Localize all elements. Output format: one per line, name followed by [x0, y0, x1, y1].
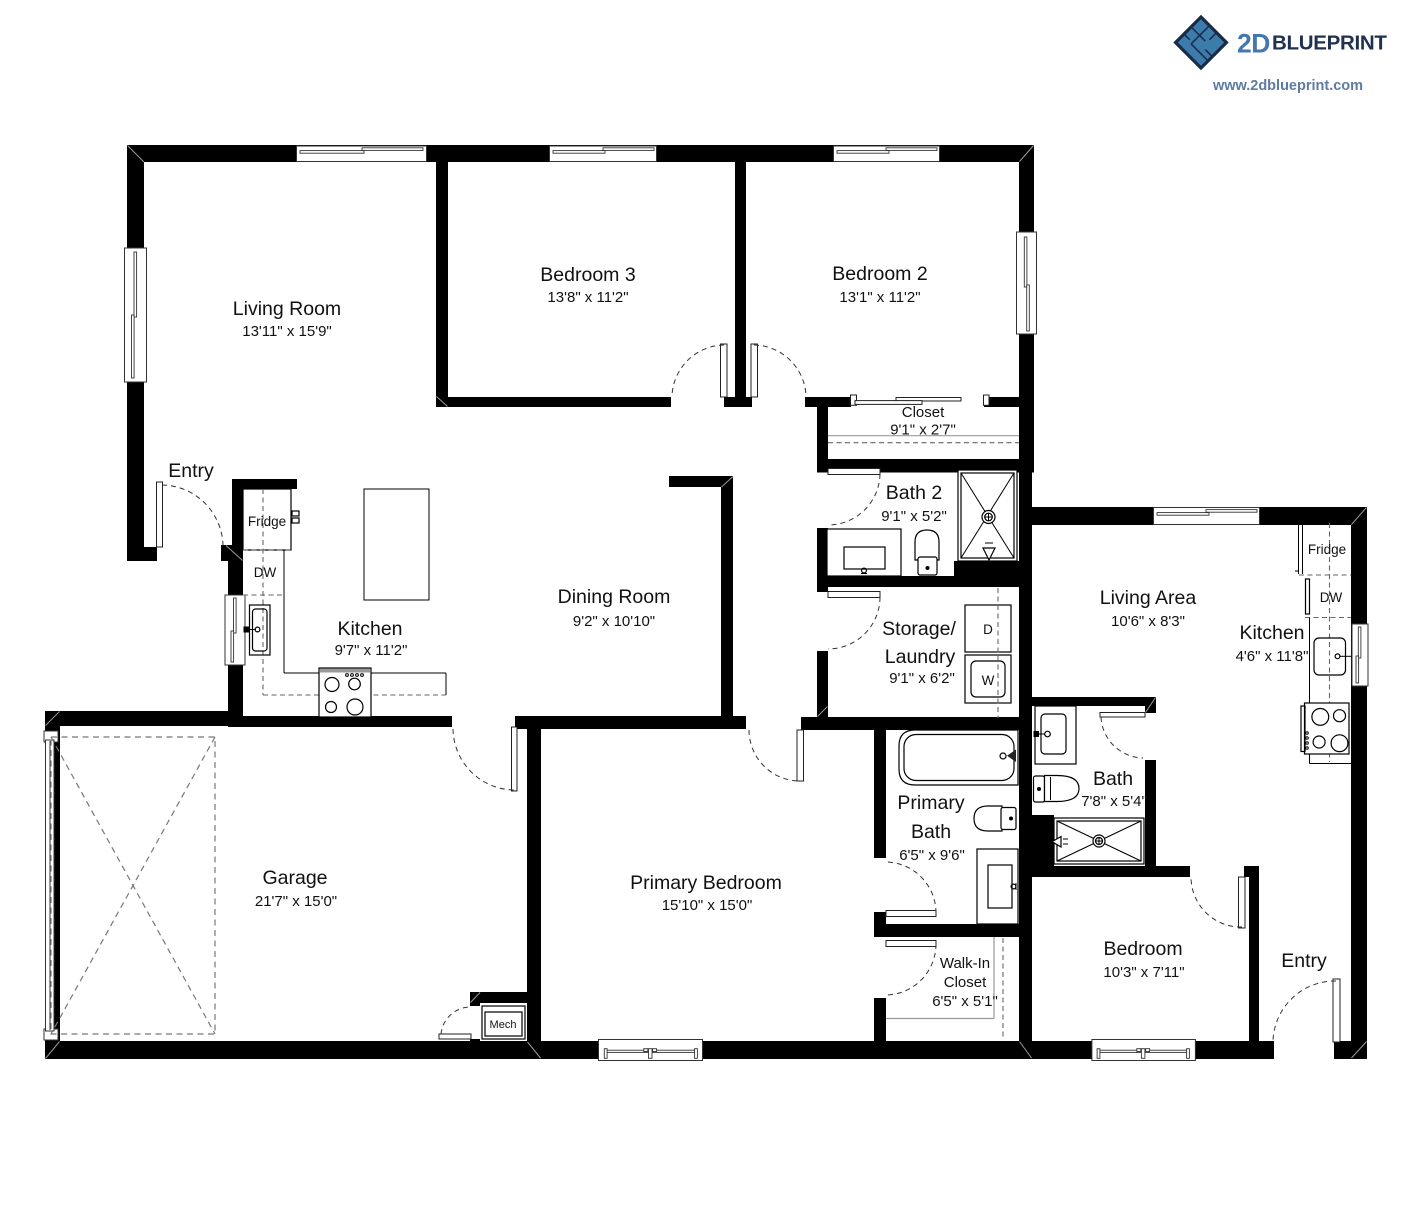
svg-text:13'8" x 11'2": 13'8" x 11'2"	[547, 289, 628, 306]
svg-text:7'8" x 5'4": 7'8" x 5'4"	[1081, 793, 1147, 810]
svg-text:D: D	[983, 622, 993, 637]
svg-text:15'10" x 15'0": 15'10" x 15'0"	[662, 897, 753, 914]
svg-text:Living Room: Living Room	[233, 298, 341, 320]
svg-text:Closet: Closet	[902, 404, 945, 421]
svg-text:DW: DW	[254, 565, 277, 580]
svg-text:Bath: Bath	[911, 821, 951, 843]
svg-text:W: W	[982, 673, 995, 688]
svg-text:Bath 2: Bath 2	[886, 482, 942, 504]
svg-text:Bedroom: Bedroom	[1103, 938, 1182, 960]
svg-text:Bath: Bath	[1093, 768, 1133, 790]
svg-text:Bedroom 2: Bedroom 2	[832, 263, 927, 285]
svg-text:Primary: Primary	[897, 792, 964, 814]
svg-text:9'2" x 10'10": 9'2" x 10'10"	[573, 613, 655, 630]
svg-text:Living Area: Living Area	[1100, 587, 1197, 609]
svg-text:9'1" x 6'2": 9'1" x 6'2"	[889, 670, 955, 687]
svg-text:6'5" x 9'6": 6'5" x 9'6"	[899, 847, 965, 864]
svg-text:13'1" x 11'2": 13'1" x 11'2"	[839, 289, 920, 306]
svg-text:www.2dblueprint.com: www.2dblueprint.com	[1212, 78, 1363, 94]
svg-text:Kitchen: Kitchen	[337, 618, 402, 640]
svg-text:Garage: Garage	[262, 867, 327, 889]
svg-text:9'1" x 5'2": 9'1" x 5'2"	[881, 508, 947, 525]
svg-text:10'6" x 8'3": 10'6" x 8'3"	[1111, 613, 1185, 630]
svg-text:9'7" x 11'2": 9'7" x 11'2"	[335, 642, 408, 659]
svg-text:Fridge: Fridge	[1308, 542, 1346, 557]
svg-text:Storage/: Storage/	[882, 618, 956, 640]
svg-text:BLUEPRINT: BLUEPRINT	[1272, 32, 1387, 55]
svg-text:9'1" x 2'7": 9'1" x 2'7"	[890, 422, 956, 439]
svg-text:Kitchen: Kitchen	[1239, 622, 1304, 644]
svg-text:4'6" x 11'8": 4'6" x 11'8"	[1236, 648, 1309, 665]
svg-text:Laundry: Laundry	[885, 646, 956, 668]
svg-text:DW: DW	[1320, 590, 1343, 605]
svg-text:Walk-In: Walk-In	[940, 955, 990, 972]
svg-text:Bedroom 3: Bedroom 3	[540, 264, 635, 286]
svg-text:2D: 2D	[1237, 29, 1270, 59]
svg-text:21'7" x 15'0": 21'7" x 15'0"	[255, 893, 337, 910]
svg-text:10'3" x 7'11": 10'3" x 7'11"	[1103, 964, 1184, 981]
svg-text:Primary Bedroom: Primary Bedroom	[630, 872, 782, 894]
svg-text:Entry: Entry	[1281, 950, 1327, 972]
svg-text:Entry: Entry	[168, 460, 214, 482]
svg-text:Closet: Closet	[944, 974, 987, 991]
svg-text:6'5" x 5'1": 6'5" x 5'1"	[932, 993, 998, 1010]
svg-text:Dining Room: Dining Room	[558, 586, 671, 608]
svg-text:Fridge: Fridge	[248, 514, 286, 529]
svg-text:13'11" x 15'9": 13'11" x 15'9"	[242, 323, 332, 340]
svg-text:Mech: Mech	[490, 1019, 517, 1031]
